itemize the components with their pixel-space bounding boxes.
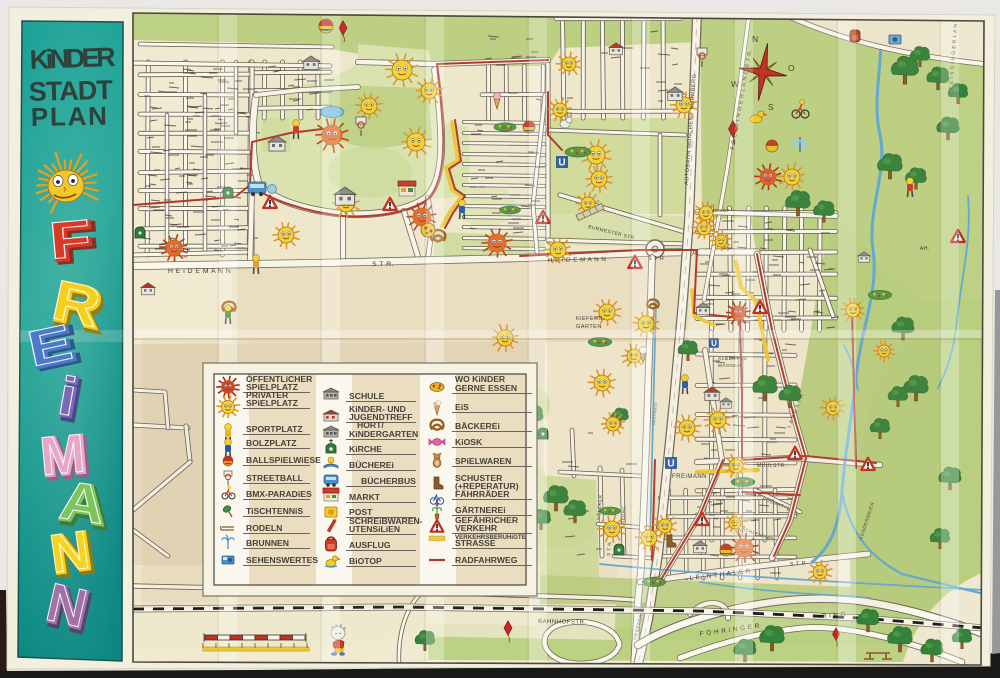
svg-text:SPiELPLATZ: SPiELPLATZ <box>246 398 298 408</box>
svg-text:BÜCHEREi: BÜCHEREi <box>349 460 394 470</box>
svg-text:VERKEHR: VERKEHR <box>455 523 498 533</box>
svg-text:BALLSPiELWiESE: BALLSPiELWiESE <box>246 455 321 465</box>
svg-text:BMX-PARADiES: BMX-PARADiES <box>246 489 312 499</box>
svg-text:KiNDERGARTEN: KiNDERGARTEN <box>349 429 418 439</box>
svg-text:BOLZPLATZ: BOLZPLATZ <box>246 438 296 448</box>
svg-text:BiOTOP: BiOTOP <box>349 556 382 566</box>
svg-text:GERNE ESSEN: GERNE ESSEN <box>455 383 517 393</box>
svg-text:BÜCHERBUS: BÜCHERBUS <box>361 476 416 486</box>
svg-text:UTENSiLiEN: UTENSiLiEN <box>349 524 400 534</box>
svg-text:FÄHRRÄDER: FÄHRRÄDER <box>455 489 510 499</box>
svg-text:BÄCKEREi: BÄCKEREi <box>455 421 500 431</box>
svg-text:GÄRTNEREi: GÄRTNEREi <box>455 505 506 515</box>
svg-text:RODELN: RODELN <box>246 523 282 533</box>
svg-text:AUSFLUG: AUSFLUG <box>349 540 391 550</box>
svg-text:RADFAHRWEG: RADFAHRWEG <box>455 555 518 565</box>
svg-text:SCHULE: SCHULE <box>349 391 385 401</box>
svg-text:SPiELWAREN: SPiELWAREN <box>455 456 511 466</box>
svg-text:MARKT: MARKT <box>349 492 381 502</box>
svg-text:KiNDER: KiNDER <box>29 42 116 75</box>
svg-text:F: F <box>47 208 93 270</box>
svg-text:EiS: EiS <box>455 402 469 412</box>
svg-text:PLAN: PLAN <box>31 101 110 132</box>
svg-text:STREETBALL: STREETBALL <box>246 473 303 483</box>
svg-text:STRASSE: STRASSE <box>455 538 496 548</box>
svg-text:SPORTPLATZ: SPORTPLATZ <box>246 424 303 434</box>
svg-text:KiRCHE: KiRCHE <box>349 444 382 454</box>
svg-text:BRUNNEN: BRUNNEN <box>246 538 289 548</box>
svg-text:KiOSK: KiOSK <box>455 437 483 447</box>
svg-text:SEHENSWERTES: SEHENSWERTES <box>246 555 318 565</box>
svg-text:TiSCHTENNiS: TiSCHTENNiS <box>246 506 303 516</box>
